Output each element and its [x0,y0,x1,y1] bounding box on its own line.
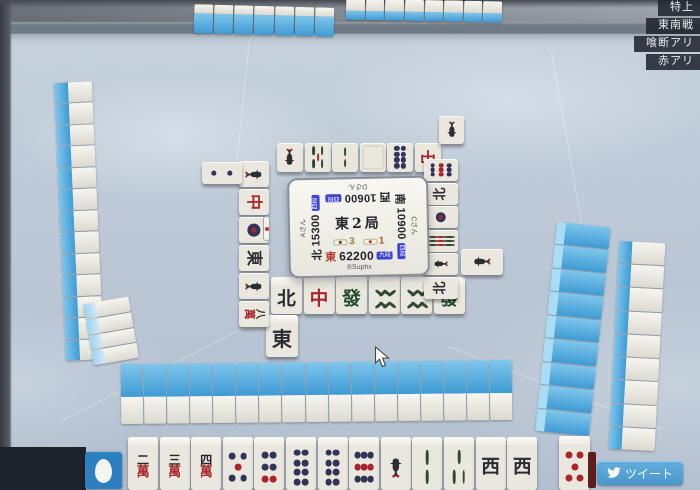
riichi-stick-icon [363,238,377,244]
score-bottom: 62200 [339,249,374,264]
room-left-edge [0,0,12,490]
seat-wind-top: 西 [379,189,390,205]
discard-tile-8s [369,277,400,314]
discard-tile-1p [424,206,458,228]
discard-tile-pei: 北 [271,277,302,314]
bottom-left-panel [0,447,86,490]
hand-tile-2s[interactable] [412,437,442,490]
riichi-stick [263,216,270,241]
honba-count: 3 [349,236,355,247]
hand-tile-9p[interactable] [349,437,379,490]
rank-badge-top: 四段 [325,194,341,202]
drawn-tile-0p[interactable] [559,436,590,490]
discard-tile-9p [424,159,458,181]
riichi-discard-tile-2p [202,162,242,184]
discard-tile-8m: 八萬 [239,301,269,327]
discard-tile-chun: 中 [239,189,269,215]
discard-tile-chun: 中 [304,277,335,314]
discard-tile-hatsu: 發 [336,277,367,314]
discard-tile-2s [332,143,358,172]
round-label: 東2局 [335,213,382,234]
game-screen: 北中發發東中中東八萬北北 西 10600 四段 Dさん Aさん 北 15300 … [0,0,700,490]
hand-tile-6p[interactable] [254,437,284,490]
bottom-wall [121,360,513,424]
rank-badge-bottom: 九段 [377,252,393,260]
discard-tile-5s [305,143,331,172]
hand-tile-3m[interactable]: 三萬 [160,437,190,490]
player-name-bottom: ®Suphx [347,264,372,272]
top-player-hand [194,4,335,37]
discard-tile-haku [360,143,386,172]
hand-tile-sha[interactable]: 西 [507,437,537,490]
twitter-bird-icon [607,467,621,479]
discard-tile-pei: 北 [424,183,458,205]
tweet-button[interactable]: ツイート [597,461,683,485]
discard-tile-1s [439,116,464,144]
hand-tile-2m[interactable]: 二萬 [128,437,158,490]
honba-stick-icon [333,239,347,245]
seat-wind-right: 南 [392,193,408,204]
lobby-info-item: 特上 [658,0,700,16]
player-name-top: Dさん [348,182,367,190]
score-top: 10600 [344,191,376,204]
discard-tile-pei: 北 [424,277,458,299]
lobby-info-menu: 特上東南戦喰断アリ赤アリ [634,0,700,70]
hand-tile-8p[interactable] [318,437,348,490]
lobby-info-item: 喰断アリ [634,36,700,52]
lobby-info-item: 赤アリ [646,54,700,70]
center-score-panel: 西 10600 四段 Dさん Aさん 北 15300 四段 Cさん 南 1090… [287,176,430,279]
discard-tile-1s [239,273,269,299]
seat-wind-bottom: 東 [325,249,336,265]
riichi-stick-count: 1 [379,235,385,246]
lobby-info-item: 東南戦 [646,18,700,34]
hand-tile-sha[interactable]: 西 [476,437,506,490]
discard-tile-8p [387,143,413,172]
player-bottom-info: 東 62200 九段 ®Suphx [290,247,427,274]
hand-tile-4m[interactable]: 四萬 [191,437,221,490]
egg-indicator-icon [85,452,122,489]
rank-badge-left: 四段 [311,195,319,211]
hand-tile-1s[interactable] [381,437,411,490]
tweet-button-label: ツイート [625,465,673,482]
riichi-discard-tile-1s [461,249,503,275]
hand-tile-3s[interactable] [444,437,474,490]
hand-tile-8p[interactable] [286,437,316,490]
discard-tile-ton: 東 [266,315,298,357]
discard-tile-ton: 東 [239,245,269,271]
round-indicator: 東2局 3 1 [290,212,428,249]
discard-tile-1s [239,161,269,187]
hand-tile-5p[interactable] [223,437,253,490]
discard-tile-1s [277,143,303,172]
tweet-logo-sliver [588,452,596,488]
top-wall [346,0,502,22]
